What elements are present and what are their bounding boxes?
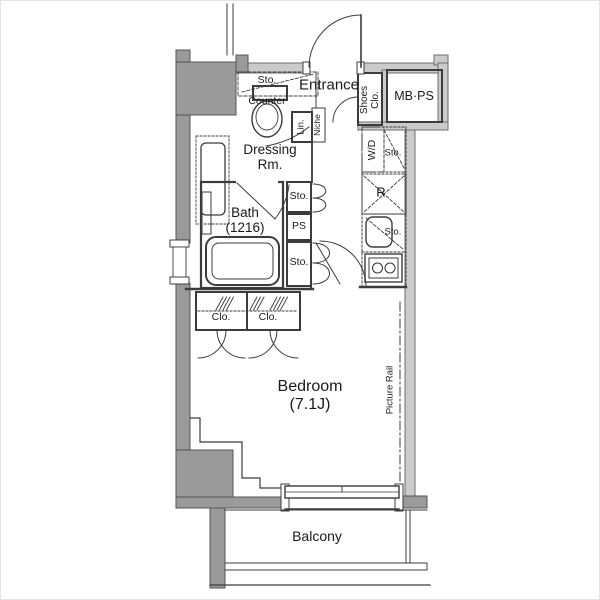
hall-storage-upper-doors: [313, 184, 326, 212]
label-storage-kitchen-lower: Sto.: [385, 228, 402, 239]
label-entrance: Entrance: [299, 78, 359, 95]
shoes-closet-door-arc: [333, 97, 358, 122]
entrance-door-arc: [309, 15, 361, 67]
label-storage-kitchen-upper: Sto.: [385, 149, 402, 160]
bathtub-icon: [206, 237, 279, 285]
label-shoes-closet: Shoes Clo.: [359, 86, 381, 114]
label-niche: Niche: [313, 114, 323, 136]
label-storage-hall-upper: Sto.: [290, 191, 309, 203]
label-refrigerator: R: [376, 186, 385, 201]
label-closet-right: Clo.: [259, 312, 278, 324]
label-bath: Bath (1216): [225, 205, 264, 235]
washer-icon: [201, 143, 225, 215]
label-closet-left: Clo.: [212, 312, 231, 324]
label-linen: Lin.: [297, 119, 308, 134]
label-pipe-space: PS: [292, 221, 306, 233]
label-bedroom: Bedroom (7.1J): [278, 378, 343, 414]
stove-icon: [365, 254, 402, 282]
balcony-rails: [210, 510, 430, 585]
label-storage-toilet: Sto.: [258, 75, 277, 87]
closet-door-arcs: [198, 330, 298, 358]
bath-shelf: [202, 192, 211, 234]
balcony-divider: [406, 510, 410, 563]
label-washer-dryer: W/D: [367, 140, 379, 160]
closet-hanger-hatch: [216, 297, 288, 310]
balcony-window: [281, 484, 403, 511]
label-balcony: Balcony: [292, 529, 342, 545]
label-dressing-room: Dressing Rm.: [243, 142, 296, 172]
floorplan-canvas: Sto. Counter Entrance Niche Lin. Shoes C…: [0, 0, 600, 600]
label-picture-rail: Picture Rail: [386, 366, 397, 415]
bath-window: [170, 240, 189, 284]
wall-stub: [227, 4, 233, 55]
label-counter: Counter: [248, 96, 285, 108]
label-storage-hall-lower: Sto.: [290, 257, 309, 269]
label-mb-ps: MB·PS: [394, 89, 434, 103]
hall-storage-lower-doors: [313, 243, 340, 284]
